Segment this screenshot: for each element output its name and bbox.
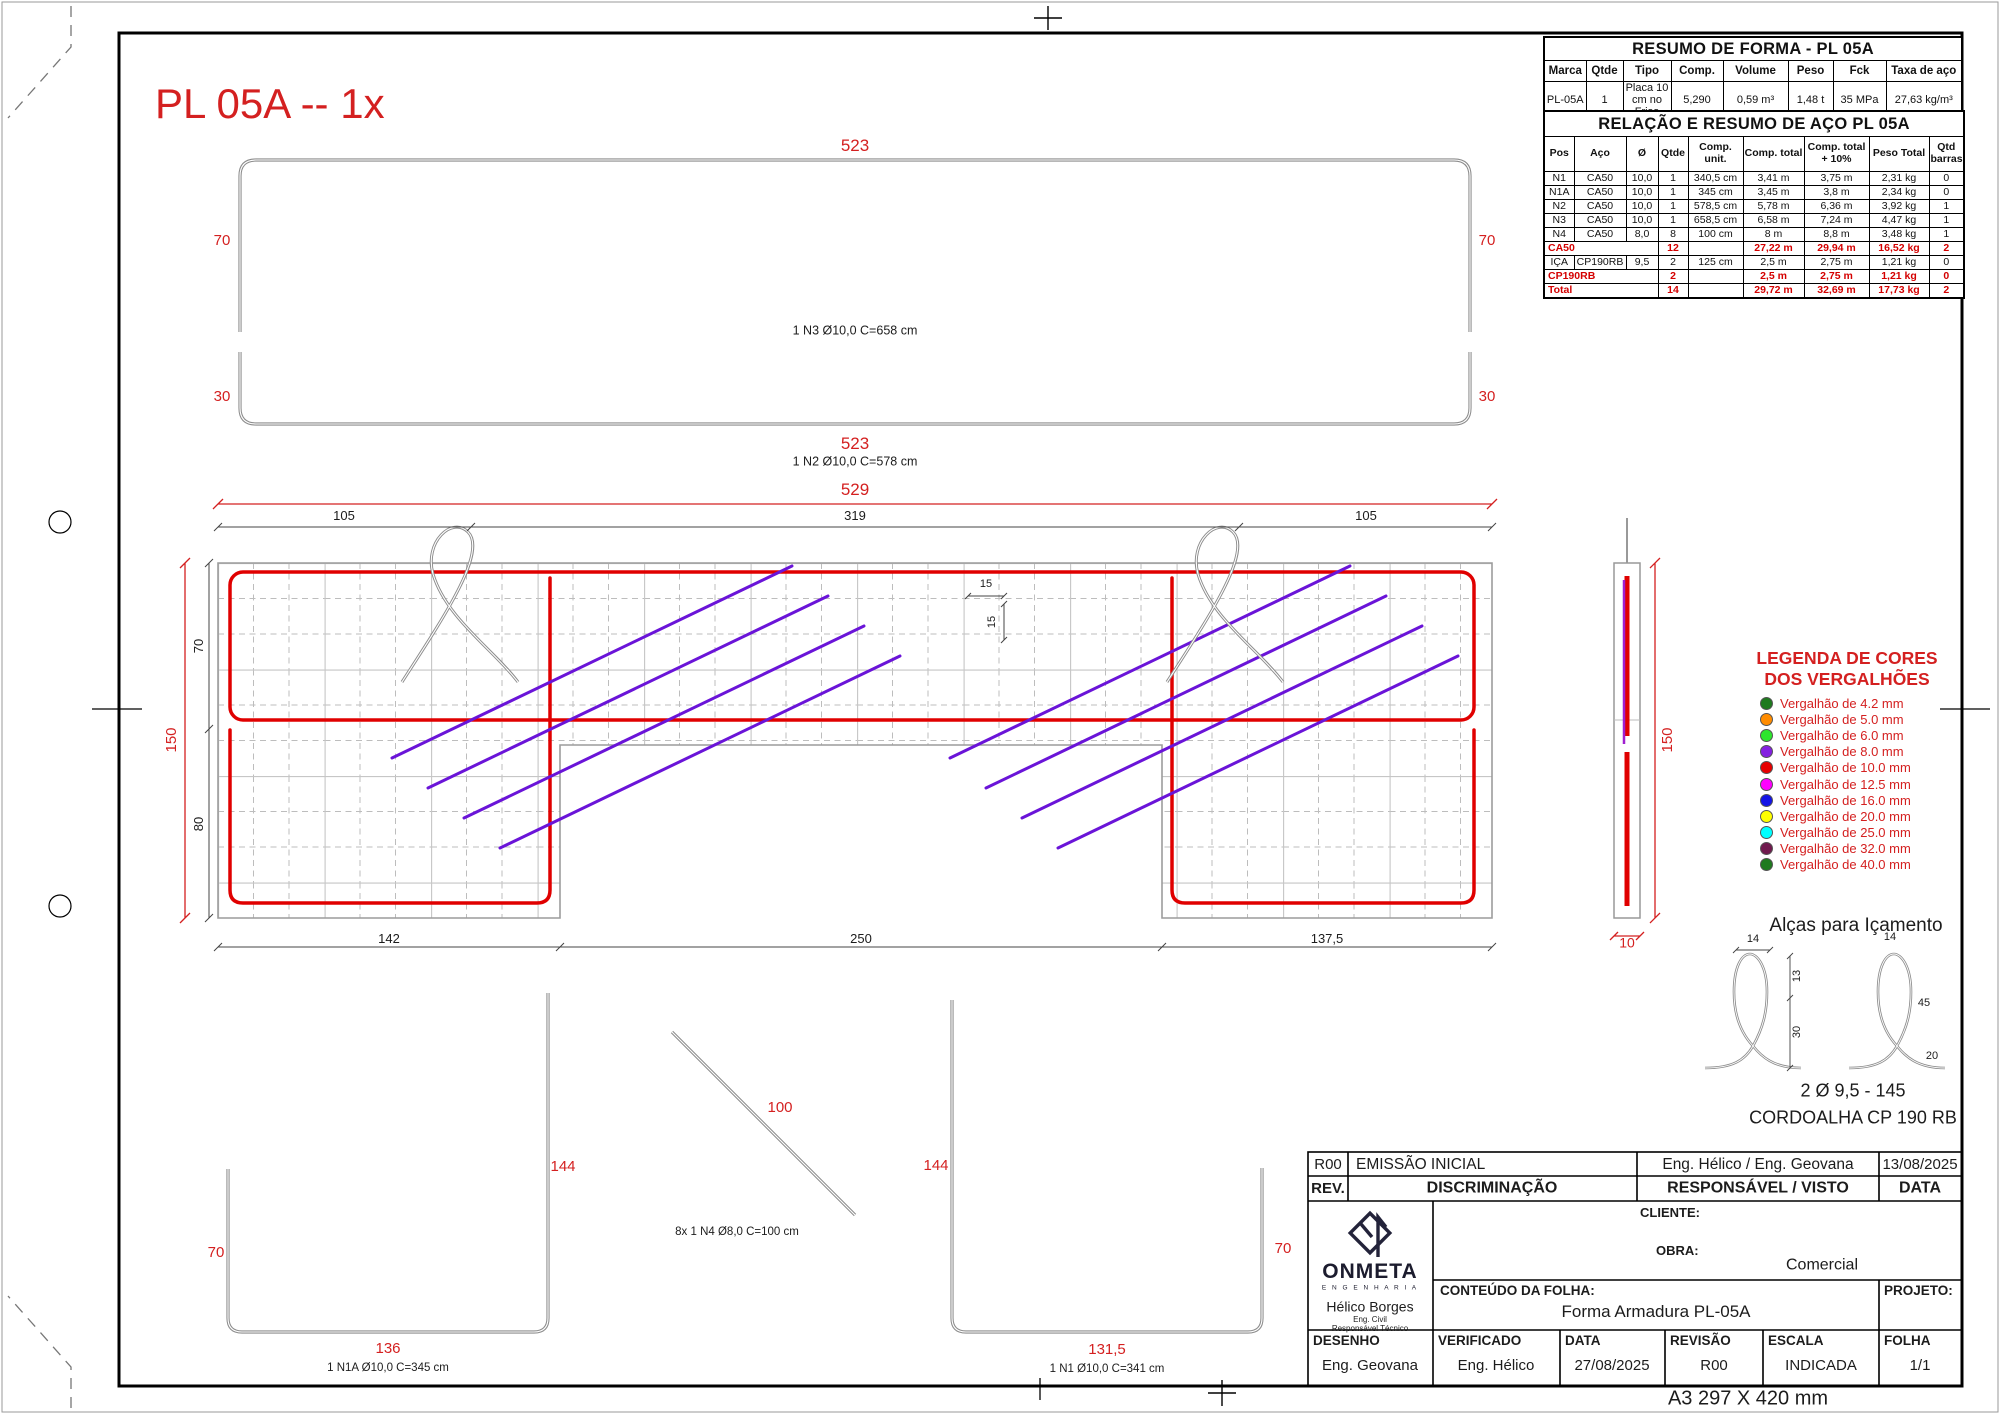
table-cell: 29,94 m xyxy=(1804,242,1869,256)
column-header: Peso Total xyxy=(1869,137,1929,172)
dim-plan-width: 529 xyxy=(841,481,869,499)
table-row: CA501227,22 m29,94 m16,52 kg2 xyxy=(1544,242,1964,256)
table-title: RESUMO DE FORMA - PL 05A xyxy=(1544,37,1962,61)
table-cell: 1,21 kg xyxy=(1869,256,1929,270)
column-header: Aço xyxy=(1574,137,1626,172)
paper-size-label: A3 297 X 420 mm xyxy=(1668,1389,1828,1410)
legend-item: Vergalhão de 8.0 mm xyxy=(1742,744,1952,760)
onmeta-logo-icon xyxy=(1340,1206,1400,1260)
rebar-color-dot-icon xyxy=(1760,761,1773,774)
dim-n2-length: 523 xyxy=(841,435,869,453)
alcas-dim-w1: 14 xyxy=(1747,934,1759,946)
alcas-dim-h2: 30 xyxy=(1792,1026,1804,1038)
dim-n3-length: 523 xyxy=(841,137,869,155)
rebar-color-legend: LEGENDA DE CORES DOS VERGALHÕES Vergalhã… xyxy=(1742,648,1952,873)
dim-plan-seg2: 319 xyxy=(844,509,866,523)
column-header: Comp. total xyxy=(1743,137,1804,172)
table-cell: 5,78 m xyxy=(1743,200,1804,214)
table-cell: 2,5 m xyxy=(1743,256,1804,270)
table-cell: 345 cm xyxy=(1688,186,1743,200)
dim-n4-length: 100 xyxy=(767,1100,792,1116)
field-revisao-label: REVISÃO xyxy=(1670,1334,1731,1348)
dim-n1a-leg-right: 144 xyxy=(550,1159,575,1175)
legend-item: Vergalhão de 16.0 mm xyxy=(1742,792,1952,808)
table-cell: 14 xyxy=(1658,284,1688,299)
column-header: Fck xyxy=(1833,61,1886,82)
legend-item: Vergalhão de 6.0 mm xyxy=(1742,727,1952,743)
dim-n2-hook-right: 30 xyxy=(1479,389,1496,405)
legend-item: Vergalhão de 40.0 mm xyxy=(1742,857,1952,873)
table-cell: 1,21 kg xyxy=(1869,270,1929,284)
table-cell: N4 xyxy=(1544,228,1574,242)
table-cell: 6,36 m xyxy=(1804,200,1869,214)
table-cell xyxy=(1688,242,1743,256)
dim-plan-seg3: 105 xyxy=(1355,509,1377,523)
table-cell: CP190RB xyxy=(1544,270,1658,284)
table-cell: 8,8 m xyxy=(1804,228,1869,242)
table-cell: CA50 xyxy=(1574,186,1626,200)
column-header: Comp. xyxy=(1671,61,1723,82)
table-cell: 578,5 cm xyxy=(1688,200,1743,214)
rebar-color-dot-icon xyxy=(1760,697,1773,710)
column-header: Peso xyxy=(1788,61,1833,82)
table-cell: 2 xyxy=(1658,270,1688,284)
engineer-name: Hélico Borges xyxy=(1326,1300,1413,1315)
logo-name: ONMETA xyxy=(1322,1261,1417,1283)
table-cell: 2,34 kg xyxy=(1869,186,1929,200)
table-cell: 1 xyxy=(1929,228,1964,242)
n4-bar-label: 8x 1 N4 Ø8,0 C=100 cm xyxy=(675,1226,799,1238)
obra-value: Comercial xyxy=(1786,1258,1858,1275)
rev-date: 13/08/2025 xyxy=(1882,1157,1957,1173)
legend-item-label: Vergalhão de 5.0 mm xyxy=(1780,712,1904,727)
plate-plan-outline xyxy=(218,563,1492,918)
table-row: N1CA5010,01340,5 cm3,41 m3,75 m2,31 kg0 xyxy=(1544,172,1964,186)
field-revisao-value: R00 xyxy=(1700,1358,1728,1374)
table-cell: CA50 xyxy=(1574,200,1626,214)
rebar-color-dot-icon xyxy=(1760,858,1773,871)
field-verificado-value: Eng. Hélico xyxy=(1458,1358,1535,1374)
dim-plan-h1: 70 xyxy=(192,639,206,653)
dim-n3-leg-left: 70 xyxy=(214,233,231,249)
table-cell: IÇA xyxy=(1544,256,1574,270)
fold-mark-bottom-left xyxy=(8,1296,71,1408)
dim-plan-b2: 250 xyxy=(850,932,872,946)
alcas-dim-h1: 13 xyxy=(1792,970,1804,982)
table-cell: 3,92 kg xyxy=(1869,200,1929,214)
legend-item-label: Vergalhão de 16.0 mm xyxy=(1780,793,1911,808)
legend-item-label: Vergalhão de 25.0 mm xyxy=(1780,825,1911,840)
n2-bar-label: 1 N2 Ø10,0 C=578 cm xyxy=(793,455,918,468)
table-cell: 10,0 xyxy=(1626,186,1658,200)
legend-item: Vergalhão de 12.5 mm xyxy=(1742,776,1952,792)
engineer-role2: Responsável Técnico xyxy=(1332,1325,1408,1333)
punch-hole-bottom xyxy=(49,895,71,917)
alcas-dim-h3: 45 xyxy=(1918,998,1930,1010)
table-cell: N3 xyxy=(1544,214,1574,228)
legend-item-label: Vergalhão de 20.0 mm xyxy=(1780,809,1911,824)
dim-plan-b1: 142 xyxy=(378,932,400,946)
dim-plan-seg1: 105 xyxy=(333,509,355,523)
table-row: N3CA5010,01658,5 cm6,58 m7,24 m4,47 kg1 xyxy=(1544,214,1964,228)
table-cell: CA50 xyxy=(1574,172,1626,186)
lifting-loop-detail-left xyxy=(1705,954,1801,1068)
legend-item: Vergalhão de 5.0 mm xyxy=(1742,711,1952,727)
table-cell xyxy=(1688,270,1743,284)
rev-responsible: Eng. Hélico / Eng. Geovana xyxy=(1662,1157,1853,1173)
column-header: Comp. total + 10% xyxy=(1804,137,1869,172)
table-cell: CA50 xyxy=(1544,242,1658,256)
rebar-color-dot-icon xyxy=(1760,810,1773,823)
table-cell: 9,5 xyxy=(1626,256,1658,270)
table-cell: 4,47 kg xyxy=(1869,214,1929,228)
table-cell: 32,69 m xyxy=(1804,284,1869,299)
field-data-label: DATA xyxy=(1565,1334,1601,1348)
table-cell: 3,8 m xyxy=(1804,186,1869,200)
table-row: N1ACA5010,01345 cm3,45 m3,8 m2,34 kg0 xyxy=(1544,186,1964,200)
rev-col-header: REV. xyxy=(1311,1181,1345,1197)
table-cell: 2,5 m xyxy=(1743,270,1804,284)
field-escala-value: INDICADA xyxy=(1785,1358,1857,1374)
dim-plan-height: 150 xyxy=(164,727,180,752)
alcas-dim-b1: 20 xyxy=(1926,1051,1938,1063)
table-cell: 100 cm xyxy=(1688,228,1743,242)
column-header: Comp. unit. xyxy=(1688,137,1743,172)
dim-mesh-x: 15 xyxy=(980,579,992,591)
date-col-header: DATA xyxy=(1899,1181,1941,1198)
table-cell: 1 xyxy=(1929,214,1964,228)
legend-item: Vergalhão de 32.0 mm xyxy=(1742,841,1952,857)
dim-n3-leg-right: 70 xyxy=(1479,233,1496,249)
alcas-title: Alças para Içamento xyxy=(1769,916,1942,936)
table-cell xyxy=(1688,284,1743,299)
alcas-type: CORDOALHA CP 190 RB xyxy=(1749,1109,1957,1128)
dim-plan-h2: 80 xyxy=(192,817,206,831)
dim-section-height: 150 xyxy=(1660,727,1676,752)
legend-item-label: Vergalhão de 8.0 mm xyxy=(1780,744,1904,759)
logo-subtitle: E N G E N H A R I A xyxy=(1322,1286,1418,1293)
column-header: Ø xyxy=(1626,137,1658,172)
table-cell: Total xyxy=(1544,284,1658,299)
table-cell: 1 xyxy=(1658,172,1688,186)
dim-n1-base: 131,5 xyxy=(1088,1342,1126,1358)
table-cell: 8 xyxy=(1658,228,1688,242)
table-cell: CA50 xyxy=(1574,214,1626,228)
table-title: RELAÇÃO E RESUMO DE AÇO PL 05A xyxy=(1544,111,1964,137)
table-cell: 8,0 xyxy=(1626,228,1658,242)
rebar-color-dot-icon xyxy=(1760,778,1773,791)
resp-col-header: RESPONSÁVEL / VISTO xyxy=(1667,1181,1849,1198)
page-title: PL 05A -- 1x xyxy=(155,82,385,126)
table-cell: 1 xyxy=(1658,214,1688,228)
table-cell: 3,75 m xyxy=(1804,172,1869,186)
table-cell: 658,5 cm xyxy=(1688,214,1743,228)
dim-n1a-base: 136 xyxy=(375,1341,400,1357)
table-cell: 27,22 m xyxy=(1743,242,1804,256)
rebar-color-dot-icon xyxy=(1760,713,1773,726)
punch-hole-top xyxy=(49,511,71,533)
table-cell: 2 xyxy=(1929,284,1964,299)
field-escala-label: ESCALA xyxy=(1768,1334,1824,1348)
legend-item: Vergalhão de 25.0 mm xyxy=(1742,825,1952,841)
client-label: CLIENTE: xyxy=(1640,1206,1700,1220)
legend-item: Vergalhão de 10.0 mm xyxy=(1742,760,1952,776)
table-cell: 2,75 m xyxy=(1804,270,1869,284)
table-cell: 3,41 m xyxy=(1743,172,1804,186)
column-header: Marca xyxy=(1544,61,1586,82)
rev-code: R00 xyxy=(1314,1157,1342,1173)
table-cell: 3,45 m xyxy=(1743,186,1804,200)
obra-label: OBRA: xyxy=(1656,1244,1699,1258)
table-cell: 7,24 m xyxy=(1804,214,1869,228)
table-cell: CP190RB xyxy=(1574,256,1626,270)
table-row: Total1429,72 m32,69 m17,73 kg2 xyxy=(1544,284,1964,299)
table-cell: N1A xyxy=(1544,186,1574,200)
dim-n1a-leg-left: 70 xyxy=(208,1245,225,1261)
legend-item-label: Vergalhão de 10.0 mm xyxy=(1780,760,1911,775)
field-verificado-label: VERIFICADO xyxy=(1438,1334,1521,1348)
table-cell: 10,0 xyxy=(1626,200,1658,214)
table-cell: 1 xyxy=(1658,200,1688,214)
table-row: N4CA508,08100 cm8 m8,8 m3,48 kg1 xyxy=(1544,228,1964,242)
table-cell: 0 xyxy=(1929,256,1964,270)
conteudo-label: CONTEÚDO DA FOLHA: xyxy=(1440,1284,1595,1298)
fold-mark-top-left xyxy=(8,6,71,118)
table-row: IÇACP190RB9,52125 cm2,5 m2,75 m1,21 kg0 xyxy=(1544,256,1964,270)
rebar-n4-shape xyxy=(672,1032,855,1215)
table-cell: 2 xyxy=(1929,242,1964,256)
table-cell: 0 xyxy=(1929,172,1964,186)
n1-bar-label: 1 N1 Ø10,0 C=341 cm xyxy=(1050,1363,1165,1375)
field-folha-label: FOLHA xyxy=(1884,1334,1931,1348)
dim-section-width: 10 xyxy=(1619,936,1635,951)
register-cross-top xyxy=(1034,6,1062,30)
rebar-n2-shape xyxy=(240,352,1470,424)
resumo-forma-table: RESUMO DE FORMA - PL 05AMarcaQtdeTipoCom… xyxy=(1543,36,1963,120)
rebar-color-dot-icon xyxy=(1760,826,1773,839)
legend-item-label: Vergalhão de 6.0 mm xyxy=(1780,728,1904,743)
table-cell: 0 xyxy=(1929,270,1964,284)
dim-n1-leg-left: 144 xyxy=(923,1158,948,1174)
table-cell: 1 xyxy=(1658,186,1688,200)
table-cell: N2 xyxy=(1544,200,1574,214)
alcas-dim-w2: 14 xyxy=(1884,932,1896,944)
rev-description: EMISSÃO INICIAL xyxy=(1356,1157,1485,1173)
table-cell: N1 xyxy=(1544,172,1574,186)
n1a-bar-label: 1 N1A Ø10,0 C=345 cm xyxy=(327,1362,449,1374)
field-data-value: 27/08/2025 xyxy=(1574,1358,1649,1374)
table-cell: 10,0 xyxy=(1626,214,1658,228)
legend-item-label: Vergalhão de 4.2 mm xyxy=(1780,696,1904,711)
conteudo-value: Forma Armadura PL-05A xyxy=(1562,1303,1751,1321)
dim-n1-leg-right: 70 xyxy=(1275,1241,1292,1257)
register-cross-bottom xyxy=(1208,1380,1236,1406)
desc-col-header: DISCRIMINAÇÃO xyxy=(1427,1181,1558,1198)
rebar-color-dot-icon xyxy=(1760,745,1773,758)
legend-title-line1: LEGENDA DE CORES xyxy=(1742,648,1952,669)
table-cell: 17,73 kg xyxy=(1869,284,1929,299)
legend-title-line2: DOS VERGALHÕES xyxy=(1742,669,1952,690)
rebar-color-dot-icon xyxy=(1760,842,1773,855)
table-cell: 0 xyxy=(1929,186,1964,200)
table-row: N2CA5010,01578,5 cm5,78 m6,36 m3,92 kg1 xyxy=(1544,200,1964,214)
rebar-color-dot-icon xyxy=(1760,794,1773,807)
table-cell: 340,5 cm xyxy=(1688,172,1743,186)
legend-item-label: Vergalhão de 32.0 mm xyxy=(1780,841,1911,856)
table-cell: 16,52 kg xyxy=(1869,242,1929,256)
table-cell: 10,0 xyxy=(1626,172,1658,186)
legend-item: Vergalhão de 20.0 mm xyxy=(1742,808,1952,824)
field-desenho-label: DESENHO xyxy=(1313,1334,1380,1348)
column-header: Tipo xyxy=(1623,61,1671,82)
drawing-sheet: { "sheet": { "drawing_title": "PL 05A --… xyxy=(0,0,2000,1414)
table-cell: 12 xyxy=(1658,242,1688,256)
table-cell: 125 cm xyxy=(1688,256,1743,270)
column-header: Qtde xyxy=(1586,61,1623,82)
legend-item-label: Vergalhão de 40.0 mm xyxy=(1780,857,1911,872)
rebar-n1-shape xyxy=(952,1000,1262,1332)
rebar-n3-shape xyxy=(240,160,1470,332)
table-cell: CA50 xyxy=(1574,228,1626,242)
legend-items: Vergalhão de 4.2 mmVergalhão de 5.0 mmVe… xyxy=(1742,695,1952,873)
legend-item-label: Vergalhão de 12.5 mm xyxy=(1780,777,1911,792)
table-cell: 3,48 kg xyxy=(1869,228,1929,242)
column-header: Qtde xyxy=(1658,137,1688,172)
n3-bar-label: 1 N3 Ø10,0 C=658 cm xyxy=(793,324,918,337)
dim-plan-b3: 137,5 xyxy=(1311,932,1344,946)
alcas-spec: 2 Ø 9,5 - 145 xyxy=(1800,1082,1905,1101)
dim-n2-hook-left: 30 xyxy=(214,389,231,405)
table-cell: 8 m xyxy=(1743,228,1804,242)
table-row: CP190RB22,5 m2,75 m1,21 kg0 xyxy=(1544,270,1964,284)
column-header: Volume xyxy=(1723,61,1788,82)
table-cell: 2,31 kg xyxy=(1869,172,1929,186)
column-header: Qtd barras xyxy=(1929,137,1964,172)
rebar-color-dot-icon xyxy=(1760,729,1773,742)
side-section xyxy=(1614,518,1640,918)
relacao-aco-table: RELAÇÃO E RESUMO DE AÇO PL 05APosAçoØQtd… xyxy=(1543,110,1965,299)
field-folha-value: 1/1 xyxy=(1910,1358,1931,1374)
legend-item: Vergalhão de 4.2 mm xyxy=(1742,695,1952,711)
table-cell: 1 xyxy=(1929,200,1964,214)
table-cell: 2 xyxy=(1658,256,1688,270)
dim-mesh-y: 15 xyxy=(987,616,999,628)
projeto-label: PROJETO: xyxy=(1884,1284,1953,1298)
table-cell: 2,75 m xyxy=(1804,256,1869,270)
rebar-n1a-shape xyxy=(228,993,548,1332)
table-cell: 29,72 m xyxy=(1743,284,1804,299)
table-cell: 6,58 m xyxy=(1743,214,1804,228)
column-header: Pos xyxy=(1544,137,1574,172)
column-header: Taxa de aço xyxy=(1886,61,1962,82)
field-desenho-value: Eng. Geovana xyxy=(1322,1358,1418,1374)
